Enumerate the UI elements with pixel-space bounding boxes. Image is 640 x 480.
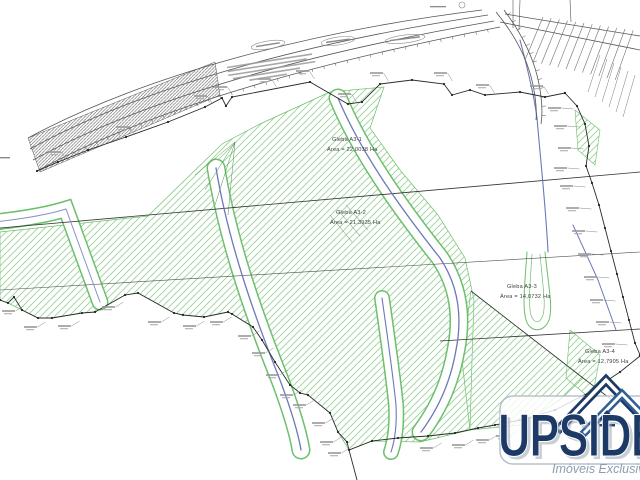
survey-label [420, 443, 442, 451]
survey-label [590, 299, 616, 303]
gleba-a3-4-name: Gleba A3-4 [585, 349, 615, 355]
survey-label [602, 343, 628, 347]
survey-label [554, 167, 580, 171]
survey-label [554, 125, 580, 129]
survey-label [183, 321, 205, 329]
survey-label [328, 448, 350, 456]
survey-label [434, 72, 453, 81]
survey-label [566, 207, 592, 211]
logo-brand: UPSIDE [498, 402, 640, 469]
utility-lines [513, 0, 571, 30]
road-end-hatch [28, 62, 220, 172]
logo-tagline: Imóveis Exclusivos [552, 462, 640, 476]
boundary-right [565, 93, 640, 355]
u-loop-corridor [524, 252, 551, 330]
survey-label [210, 317, 232, 325]
survey-label [560, 185, 586, 189]
survey-label [24, 322, 46, 330]
gleba-a3-1-area: Área = 22,0038 Ha [327, 146, 378, 153]
survey-label [370, 72, 389, 81]
gleba-a3-3-name: Gleba A3-3 [507, 284, 537, 290]
survey-label [452, 440, 474, 448]
survey-map-page: Gleba A3-1 Área = 22,0038 Ha Gleba A3-2 … [0, 0, 640, 480]
survey-label [476, 84, 495, 93]
survey-label [58, 321, 80, 329]
gleba-a3-2-name: Gleba A3-2 [336, 210, 366, 216]
survey-label [312, 418, 334, 426]
boundary-spur [349, 450, 357, 480]
gleba-a3-1-name: Gleba A3-1 [332, 137, 362, 143]
survey-station-icon [459, 2, 465, 8]
survey-label [320, 437, 342, 445]
survey-label [296, 70, 315, 79]
survey-map: Gleba A3-1 Área = 22,0038 Ha Gleba A3-2 … [0, 0, 640, 480]
survey-label [476, 435, 498, 443]
gleba-a3-4-area: Área = 12,7905 Ha [578, 358, 629, 365]
survey-label [596, 321, 622, 325]
survey-label [548, 107, 574, 111]
gleba-a3-2-area: Área = 21,3935 Ha [330, 219, 381, 226]
gleba-a3-3-area: Área = 14,0732 Ha [500, 293, 551, 300]
survey-label [148, 317, 170, 325]
